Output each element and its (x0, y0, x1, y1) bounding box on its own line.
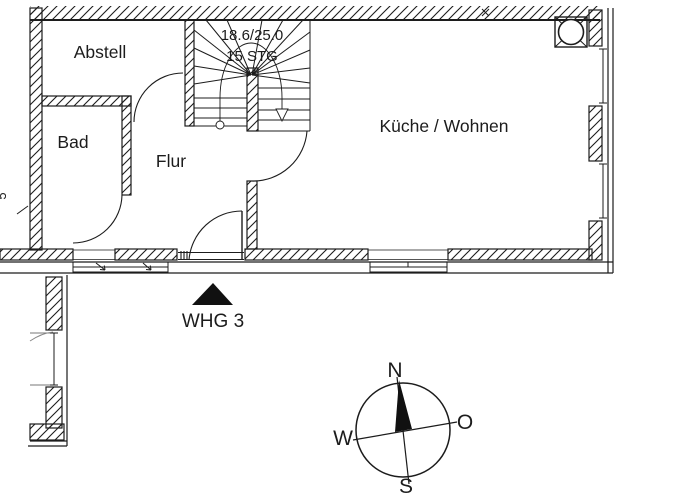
lower-left-window (30, 332, 58, 385)
unit-marker-triangle (192, 283, 233, 305)
left-exterior-wall (30, 8, 42, 250)
bad-door-swing (73, 195, 122, 243)
exterior-face-lines (0, 8, 613, 446)
compass-label-north: N (387, 359, 402, 382)
left-dimension-tick (17, 206, 28, 214)
top-wall-hatch-band (30, 6, 600, 20)
right-wall-segment-1 (589, 10, 602, 46)
floor-plan-drawing: WHG 3 N O W S Abstell Bad Flur Küche / W… (0, 0, 700, 500)
compass-rose: N O W S (333, 359, 473, 498)
room-label-kueche-wohnen: Küche / Wohnen (379, 116, 508, 136)
compass-label-south: S (399, 475, 413, 498)
lower-left-wall-segment-2 (46, 387, 62, 428)
room-label-flur: Flur (156, 151, 186, 171)
kueche-door-swing (252, 131, 307, 181)
stair-left-wall (185, 20, 194, 126)
right-window-2 (599, 164, 607, 218)
flur-kueche-stub-wall (247, 181, 257, 249)
stair-dimension-label: 18.6/25.0 (221, 27, 284, 44)
compass-label-east: O (457, 411, 473, 434)
compass-label-west: W (333, 427, 353, 450)
chimney-shaft (555, 17, 587, 47)
unit-marker-label: WHG 3 (182, 311, 244, 332)
stair-spine-wall (247, 68, 258, 131)
lower-left-wall-segment-1 (46, 277, 62, 330)
bottom-wall-segment-2 (115, 249, 177, 260)
abstell-bottom-wall (42, 96, 131, 106)
bottom-wall-segment-4 (448, 249, 592, 260)
unit-marker: WHG 3 (182, 283, 244, 332)
bottom-wall-segment-3 (245, 249, 368, 260)
entrance-door (178, 211, 244, 260)
stair-steps-label: 15 STG (226, 48, 278, 65)
bottom-window-2 (368, 250, 448, 272)
shaft-circle (559, 20, 584, 45)
edge-dimension-fragment: 5 (0, 192, 9, 199)
lower-left-wall-corner (30, 424, 64, 440)
room-label-abstell: Abstell (74, 42, 127, 62)
right-wall-segment-2 (589, 106, 602, 161)
abstell-door-swing (134, 73, 183, 122)
compass-needle (395, 380, 412, 432)
walking-line-start-circle (216, 121, 224, 129)
right-window-1 (599, 49, 607, 103)
floor-plan-page: WHG 3 N O W S Abstell Bad Flur Küche / W… (0, 0, 700, 500)
walking-line-arrowhead (276, 109, 288, 121)
walls (0, 6, 602, 440)
bad-right-wall (122, 96, 131, 195)
bottom-wall-segment-1 (0, 249, 73, 260)
room-label-bad: Bad (57, 132, 88, 152)
